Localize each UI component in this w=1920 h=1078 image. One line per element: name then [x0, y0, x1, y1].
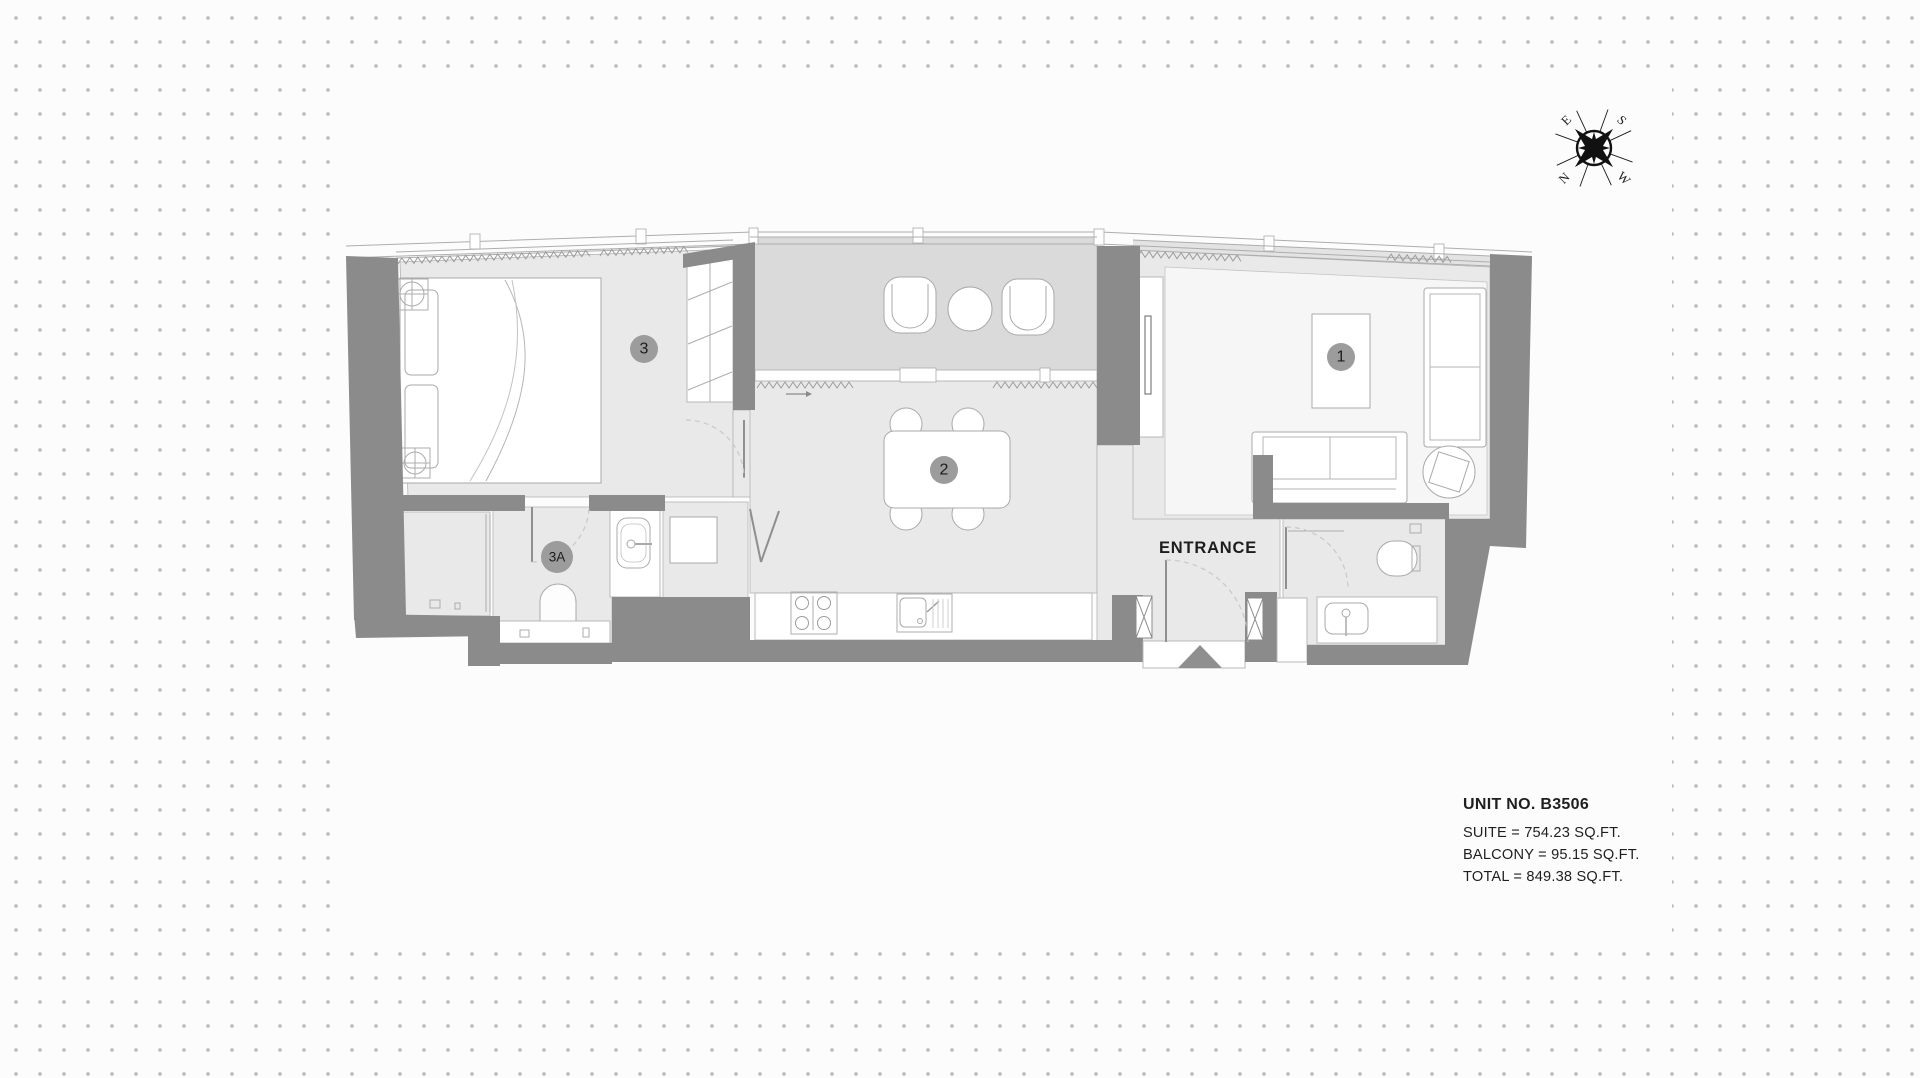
- room-badge-bath-label: 3A: [549, 550, 566, 565]
- wall-hall-bath: [1253, 455, 1273, 519]
- wall-divider: [398, 495, 525, 511]
- unit-info: UNIT NO. B3506 SUITE = 754.23 SQ.FT. BAL…: [1463, 796, 1640, 888]
- total-area: TOTAL = 849.38 SQ.FT.: [1463, 866, 1640, 888]
- floor-plan: 1 2 3 3A ENTRANCE E S W N: [0, 0, 1920, 1078]
- vanity-sink: [1317, 597, 1437, 643]
- room-badge-living-label: 1: [1337, 349, 1346, 366]
- kitchen-counter: [755, 593, 1092, 640]
- pillow: [405, 385, 438, 468]
- compass-rose: E S W N: [1520, 74, 1669, 223]
- wardrobe: [687, 258, 733, 402]
- suite-area: SUITE = 754.23 SQ.FT.: [1463, 822, 1640, 844]
- compass-east-label: E: [1558, 112, 1574, 128]
- pillow: [405, 290, 438, 375]
- balcony-chair: [884, 277, 936, 333]
- chaise: [1424, 288, 1486, 447]
- toilet: [540, 584, 576, 627]
- kitchen: [755, 592, 1092, 640]
- balcony-chair: [1002, 279, 1054, 335]
- wall-left-outer: [346, 256, 406, 620]
- wall-bottom: [612, 597, 750, 662]
- sofa: [1252, 432, 1407, 503]
- room-badge-dining-label: 2: [940, 462, 949, 479]
- wall-divider: [589, 495, 665, 511]
- balcony-table: [948, 287, 992, 331]
- balcony-area: BALCONY = 95.15 SQ.FT.: [1463, 844, 1640, 866]
- entry-jamb: [1136, 596, 1152, 638]
- entry-jamb: [1247, 598, 1263, 640]
- wall-kitchen-bottom: [750, 640, 1112, 662]
- wall-right-outer: [1490, 254, 1532, 548]
- wc-sink: [617, 518, 652, 568]
- wall-living-bath-divider: [1273, 503, 1449, 519]
- side-niche: [1277, 598, 1307, 662]
- side-table: [1423, 446, 1475, 498]
- entrance-label: ENTRANCE: [1159, 539, 1257, 557]
- shower-room-floor: [403, 512, 490, 616]
- wall-bath-bottom: [1307, 645, 1447, 665]
- wall-pillar: [1097, 246, 1140, 445]
- unit-number: UNIT NO. B3506: [1463, 796, 1640, 814]
- room-badge-bedroom-label: 3: [640, 341, 649, 358]
- compass-north-label: N: [1555, 169, 1573, 187]
- washer: [670, 517, 717, 563]
- wall-bottom: [492, 643, 612, 664]
- compass-south-label: S: [1614, 112, 1630, 128]
- vanity-counter: [497, 621, 610, 643]
- wall-corner-slant: [1445, 519, 1490, 665]
- compass-west-label: W: [1614, 168, 1634, 188]
- wall-wardrobe-side: [733, 254, 755, 410]
